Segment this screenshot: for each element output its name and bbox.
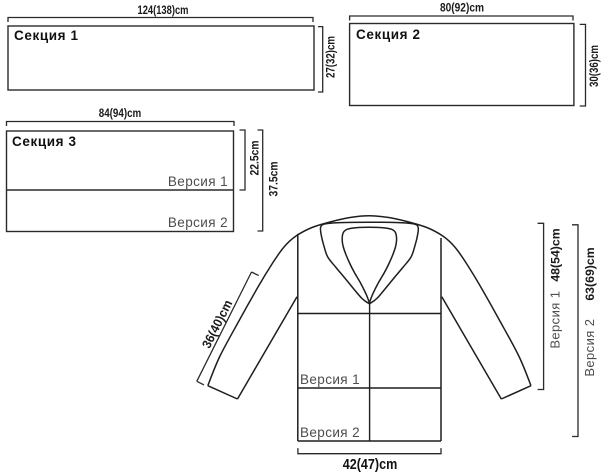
svg-text:84(94)cm: 84(94)cm xyxy=(99,107,142,120)
svg-text:37.5cm: 37.5cm xyxy=(267,162,281,197)
svg-text:30(36)cm: 30(36)cm xyxy=(587,45,601,87)
svg-text:Секция 3: Секция 3 xyxy=(12,134,77,149)
svg-text:22.5cm: 22.5cm xyxy=(248,141,262,176)
svg-text:124(138)cm: 124(138)cm xyxy=(138,4,189,17)
svg-text:27(32)cm: 27(32)cm xyxy=(324,36,338,78)
svg-text:Версия 2: Версия 2 xyxy=(300,425,360,440)
svg-text:Версия 1: Версия 1 xyxy=(168,174,228,189)
svg-text:80(92)cm: 80(92)cm xyxy=(440,2,484,15)
svg-text:Секция 1: Секция 1 xyxy=(14,28,79,43)
svg-text:Секция 2: Секция 2 xyxy=(356,27,421,42)
svg-text:Версия 2: Версия 2 xyxy=(168,215,228,230)
svg-text:Версия 1: Версия 1 xyxy=(300,372,360,387)
svg-text:42(47)cm: 42(47)cm xyxy=(343,457,398,473)
